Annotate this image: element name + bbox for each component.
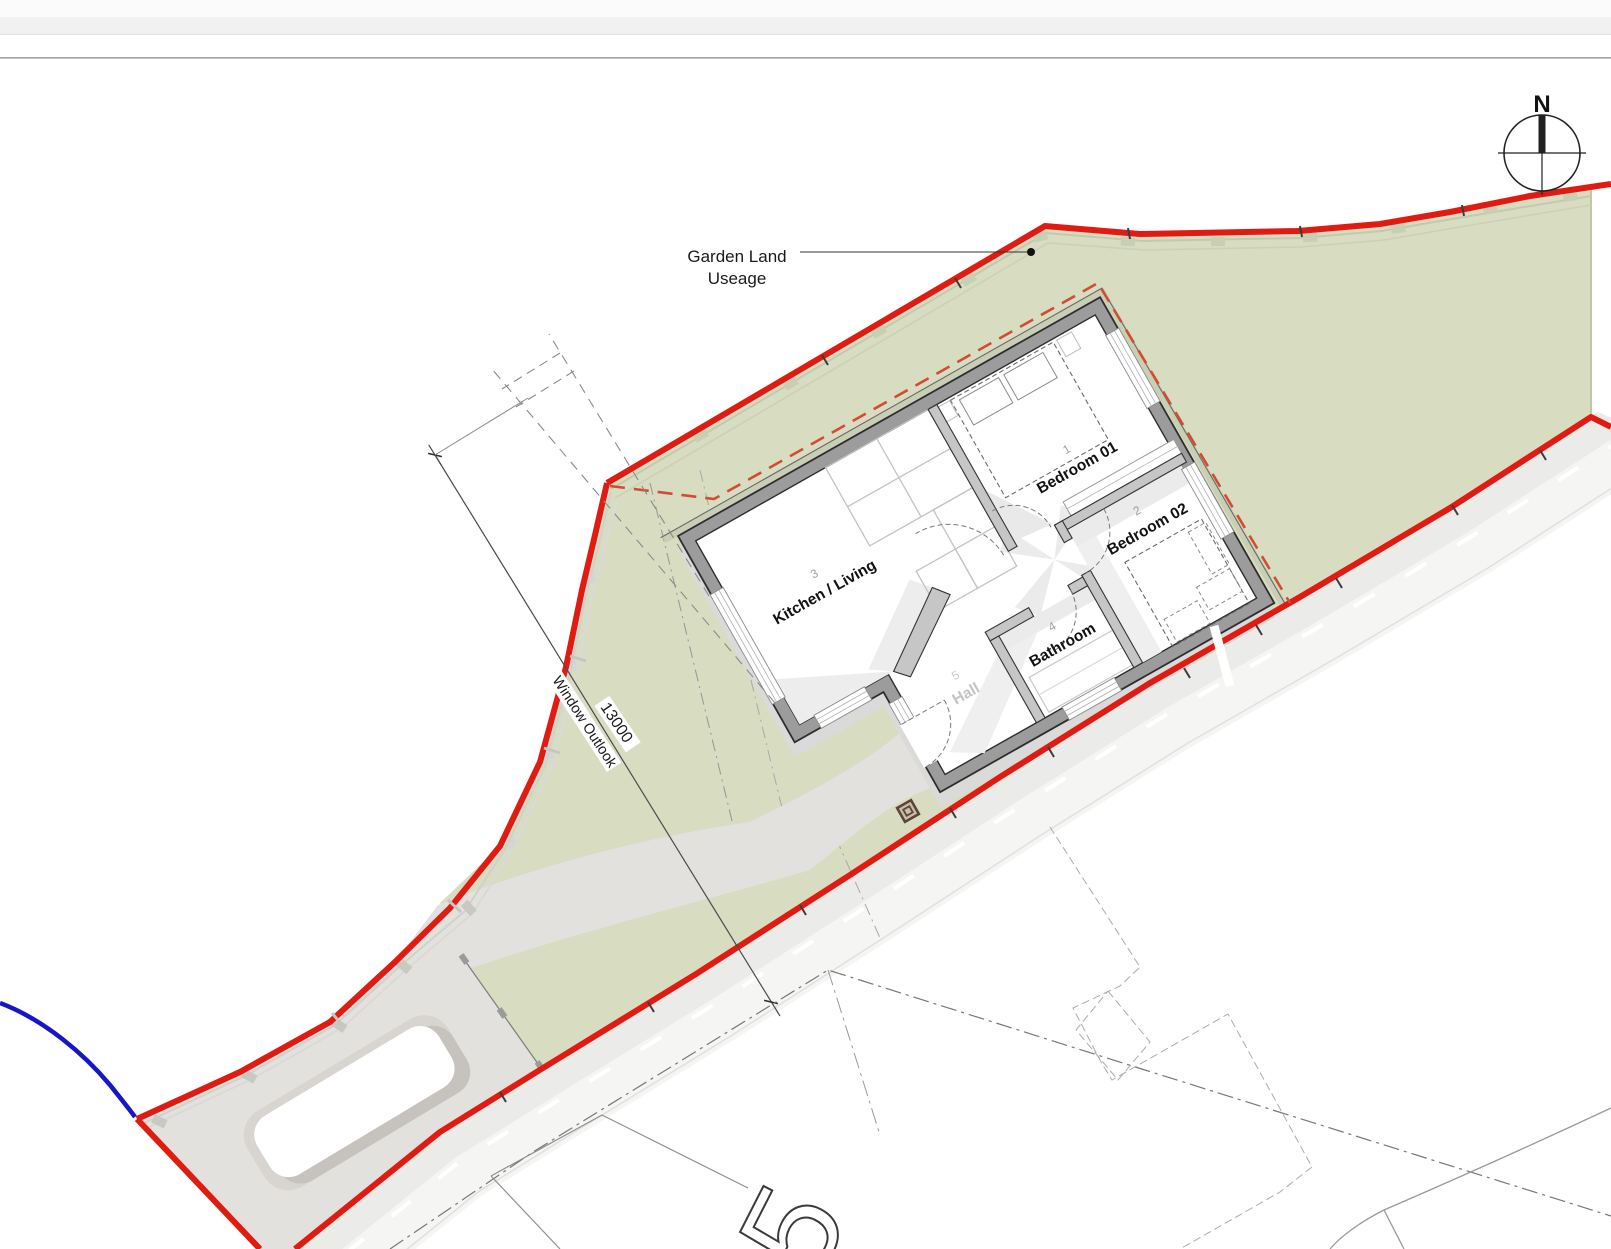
- svg-text:Garden Land: Garden Land: [687, 247, 786, 266]
- svg-text:N: N: [1533, 91, 1550, 118]
- svg-text:Useage: Useage: [708, 269, 767, 288]
